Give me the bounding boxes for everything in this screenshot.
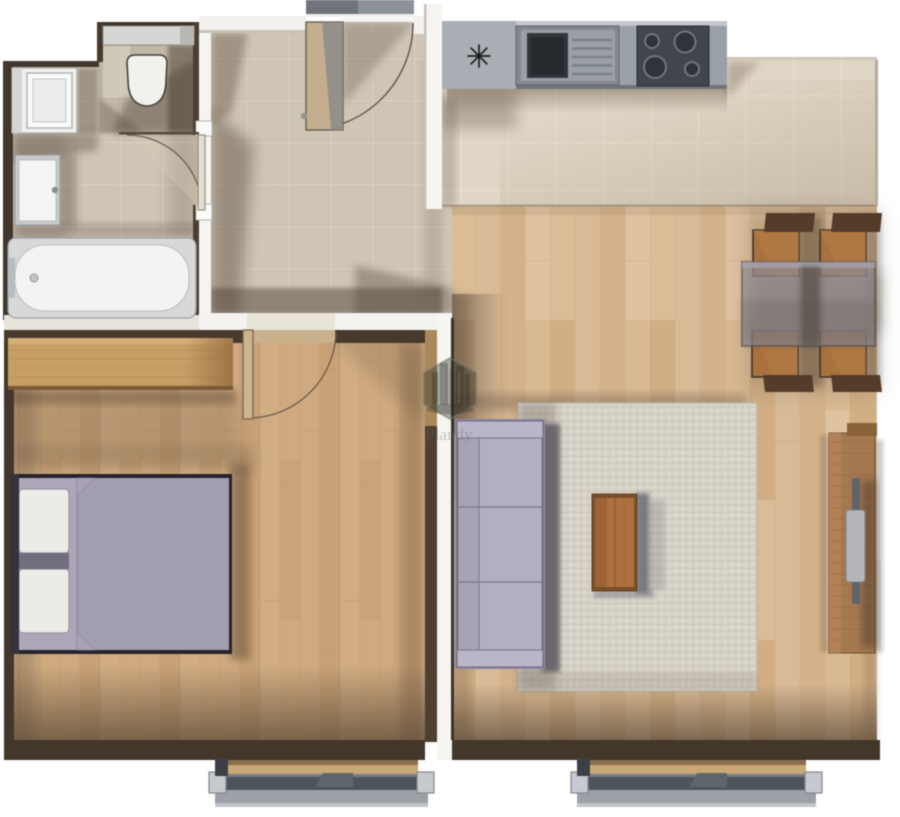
svg-text:Plandy: Plandy bbox=[425, 425, 473, 444]
